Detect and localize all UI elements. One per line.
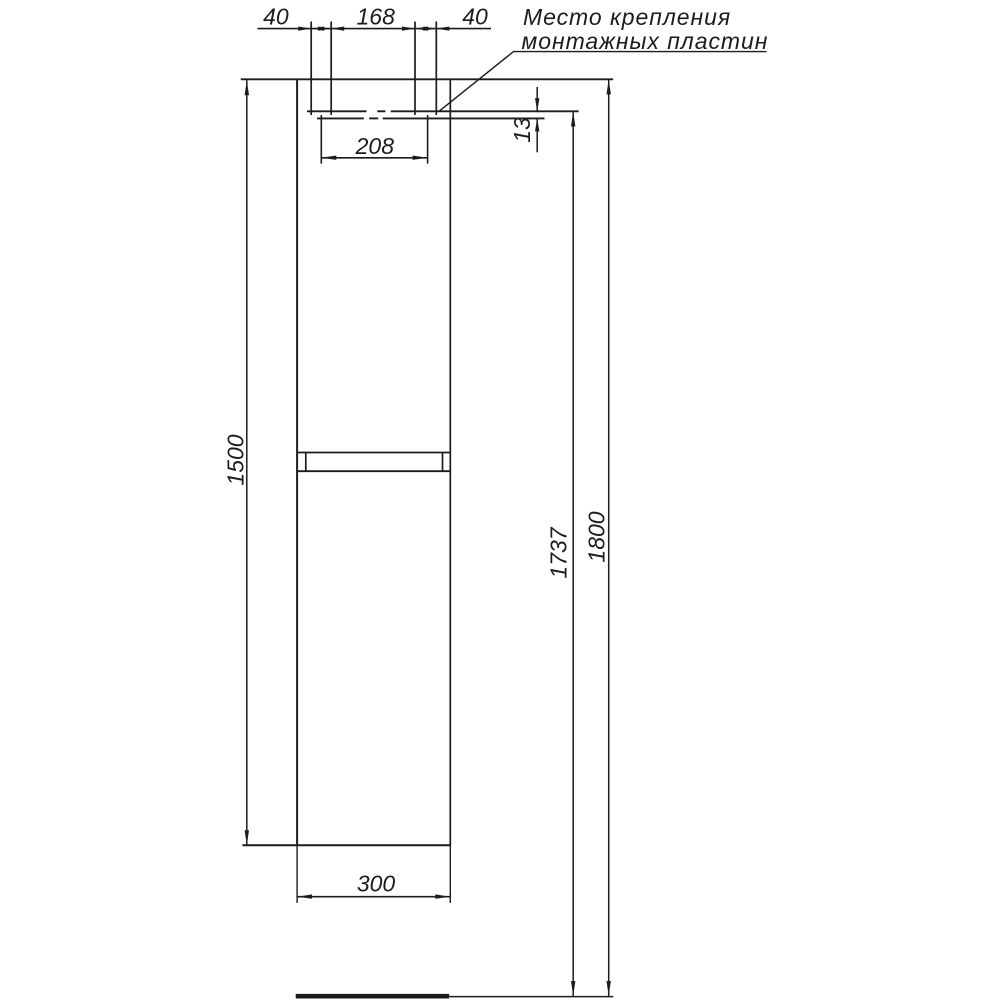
svg-text:208: 208 <box>355 133 395 159</box>
svg-text:168: 168 <box>357 4 396 30</box>
svg-text:13: 13 <box>509 117 535 143</box>
svg-text:300: 300 <box>357 871 396 897</box>
svg-text:40: 40 <box>462 4 488 30</box>
svg-text:40: 40 <box>263 4 289 30</box>
svg-text:1800: 1800 <box>584 511 610 562</box>
svg-text:1500: 1500 <box>223 434 249 485</box>
svg-text:монтажных пластин: монтажных пластин <box>522 28 769 54</box>
svg-text:1737: 1737 <box>546 526 572 578</box>
svg-text:Место крепления: Место крепления <box>523 4 731 30</box>
